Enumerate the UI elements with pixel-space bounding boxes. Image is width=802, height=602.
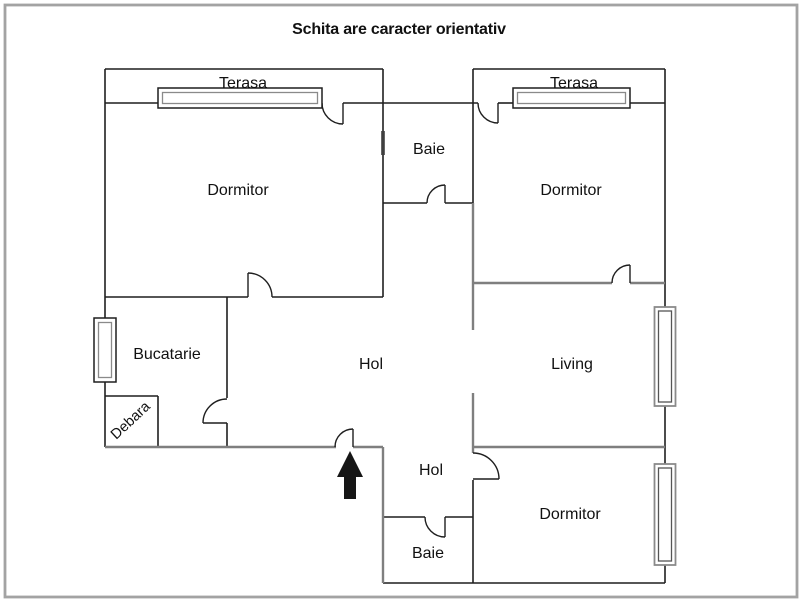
floor-plan: Schita are caracter orientativ Terasa Te… [0,0,802,602]
room-label-dormitor-right-top: Dormitor [540,183,601,199]
room-label-dormitor-left: Dormitor [207,183,268,199]
plan-title: Schita are caracter orientativ [292,22,506,38]
room-label-baie-top: Baie [413,142,445,158]
window-symbol-bucatarie [94,318,116,382]
door-arc-icon-terasa-left [322,103,343,124]
room-label-baie-bottom: Baie [412,546,444,562]
page-border [5,5,797,597]
door-arc-icon-dormitor-right-top [612,265,630,283]
door-arc-icon-baie-bottom [425,517,445,537]
door-arc-icon-entrance [335,429,353,447]
door-arc-icon-bucatarie [203,399,227,423]
room-label-hol-bottom: Hol [419,463,443,479]
room-label-bucatarie: Bucatarie [133,347,201,363]
window-symbol-dormitor-right-bottom [655,464,676,565]
door-arc-icon-dormitor-right-bottom [473,453,499,479]
door-arc-icon-terasa-right [478,103,498,123]
door-arc-icon-dormitor-left [248,273,272,297]
door-arc-icon-baie-top [427,185,445,203]
room-label-terasa-left: Terasa [219,76,267,92]
room-label-terasa-right: Terasa [550,76,598,92]
floor-plan-drawing [0,0,802,602]
room-label-dormitor-right-bottom: Dormitor [539,507,600,523]
walls-gray [105,203,665,583]
room-label-hol-center: Hol [359,357,383,373]
entrance-arrow-icon [337,451,363,499]
window-symbol-living [655,307,676,406]
room-label-living: Living [551,357,593,373]
